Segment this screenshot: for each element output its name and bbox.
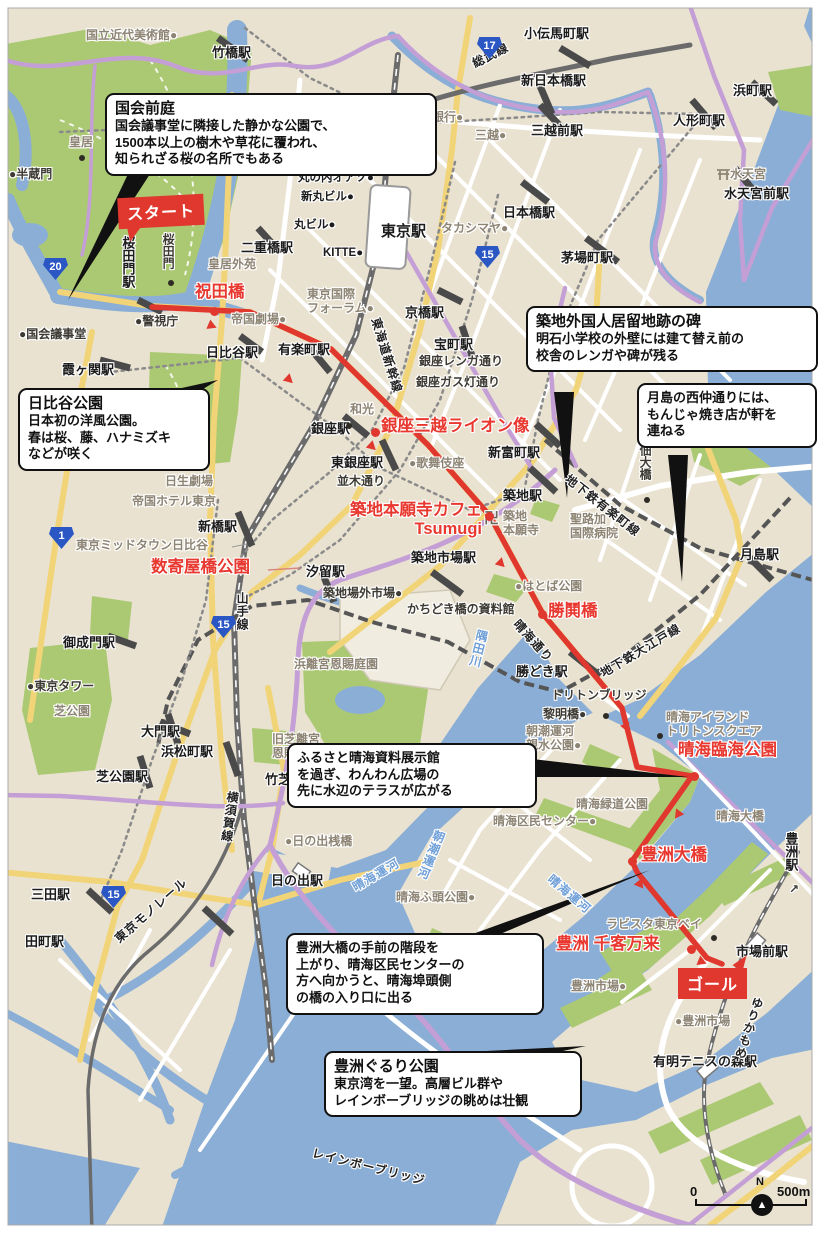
map-label: 東京駅 xyxy=(381,223,426,241)
map-label: 浜町駅 xyxy=(733,83,772,98)
map-label: 桜田門 xyxy=(161,233,175,269)
route-point-dot xyxy=(538,610,547,619)
map-label: 銀座レンガ通り xyxy=(419,354,503,368)
map-label: 並木通り xyxy=(337,474,385,488)
map-label: 御成門駅 xyxy=(63,635,115,650)
poi-dot xyxy=(711,935,717,941)
compass-north-label: N xyxy=(756,1176,764,1188)
scale-tick-right xyxy=(805,1199,807,1206)
map-label: 日の出駅 xyxy=(271,873,323,888)
map-label: 佃大橋 xyxy=(638,444,652,480)
map-label: 豊洲市場● xyxy=(571,979,626,993)
goal-badge: ゴール xyxy=(678,968,747,999)
map-label: 勝鬨橋 xyxy=(548,602,598,621)
map-label: 二重橋駅 xyxy=(241,240,293,255)
map-label: 人形町駅 xyxy=(673,113,725,128)
map-label: ●はとば公園 xyxy=(515,579,582,593)
map-label: 皇居 xyxy=(69,135,93,149)
map-label: かちどき橋の資料館 xyxy=(407,602,515,616)
map-label: ●警視庁 xyxy=(135,314,178,328)
map-label: 宝町駅 xyxy=(434,337,473,352)
map-label: 築地本願寺カフェ Tsumugi xyxy=(330,501,482,540)
map-label: 浜離宮恩賜庭園 xyxy=(294,657,378,671)
map-label: 東京ミッドタウン日比谷 xyxy=(76,538,208,552)
map-label: 東京国際 フォーラム● xyxy=(307,287,374,315)
map-label: 芝公園 xyxy=(54,704,90,718)
map-label: 芝公園駅 xyxy=(96,769,148,784)
map-label: 築地駅 xyxy=(503,488,542,503)
map-label: 豊洲大橋 xyxy=(641,846,707,865)
map-label: 日本橋駅 xyxy=(503,205,555,220)
map-label: 三越● xyxy=(475,128,506,142)
poi-dot xyxy=(168,280,174,286)
map-label: 浜松町駅 xyxy=(161,744,213,759)
callout-body: 明石小学校の外壁には建て替え前の 校舎のレンガや碑が残る xyxy=(536,331,808,364)
map-label: 晴海ふ頭公園● xyxy=(396,890,475,904)
poi-dot xyxy=(644,497,650,503)
callout-gururi-park: 豊洲ぐるり公園 東京湾を一望。高層ビル群や レインボーブリッジの眺めは壮観 xyxy=(324,1051,582,1117)
map-label: 築地 本願寺 xyxy=(503,509,539,537)
map-label: 銀座三越ライオン像 xyxy=(381,417,530,436)
poi-dot xyxy=(657,733,663,739)
map-label: 有楽町駅 xyxy=(278,342,330,357)
map-label: 勝どき駅 xyxy=(516,664,568,679)
map-label: 皇居外苑 xyxy=(208,257,256,271)
map-label: 月島駅 xyxy=(740,547,779,562)
map-label: 晴海緑道公園 xyxy=(576,797,648,811)
map-label: 晴海アイランド トリトンスクエア xyxy=(666,710,762,738)
map-label: 国立近代美術館● xyxy=(86,28,177,42)
map-label: 築地市場駅 xyxy=(411,550,476,565)
map-label: 三越前駅 xyxy=(531,123,583,138)
map-label: ●歌舞伎座 xyxy=(409,456,464,470)
map-canvas xyxy=(0,0,820,1233)
map-label: 新富町駅 xyxy=(488,445,540,460)
map-label: トリトンブリッジ xyxy=(551,688,647,702)
callout-title: 国会前庭 xyxy=(115,100,427,118)
map-label: 数寄屋橋公園 xyxy=(151,558,250,577)
callout-tsukiji-monument: 築地外国人居留地跡の碑 明石小学校の外壁には建て替え前の 校舎のレンガや碑が残る xyxy=(526,306,818,372)
map-label: KITTE● xyxy=(323,247,363,261)
callout-kokkai-garden: 国会前庭 国会議事堂に隣接した静かな公園で、 1500本以上の樹木や草花に覆われ… xyxy=(105,93,437,176)
map-label: 和光 xyxy=(350,402,374,416)
callout-hibiya-park: 日比谷公園 日本初の洋風公園。 春は桜、藤、ハナミズキ などが咲く xyxy=(18,388,210,471)
map-label: 小伝馬町駅 xyxy=(524,26,589,41)
map-label: 銀座ガス灯通り xyxy=(416,375,500,389)
map-label: ●日の出桟橋 xyxy=(285,834,352,848)
poi-dot xyxy=(603,713,609,719)
scale-zero: 0 xyxy=(690,1184,697,1199)
map-label: 水天宮 xyxy=(730,167,766,181)
map-label: 晴海区民センター● xyxy=(493,814,596,828)
map-label: 黎明橋● xyxy=(543,707,586,721)
map-label: 桜田門駅 xyxy=(120,236,135,288)
poi-dot xyxy=(79,155,85,161)
scale-tick-left xyxy=(695,1199,697,1206)
map-label: 三田駅 xyxy=(31,887,70,902)
map-label: 新日本橋駅 xyxy=(521,73,586,88)
map-label: 日生劇場 xyxy=(165,474,213,488)
map-label: 帝国ホテル東京 xyxy=(132,494,216,508)
map-label: 山手線 xyxy=(235,592,249,631)
map-label: 日比谷駅 xyxy=(206,345,258,360)
map-label: 晴海大橋 xyxy=(716,809,764,823)
compass-icon: ▲ xyxy=(751,1194,773,1216)
map-label: 帝国劇場● xyxy=(231,312,286,326)
route-point-dot xyxy=(690,772,699,781)
map-label: ●半蔵門 xyxy=(9,167,52,181)
route-point-dot xyxy=(210,307,219,316)
map-label: 豊洲 千客万来 xyxy=(556,935,660,954)
map-label: 霞ヶ関駅 xyxy=(62,362,114,377)
map-label: ●豊洲市場 xyxy=(675,1014,730,1028)
callout-tsukishima: 月島の西仲通りには、 もんじゃ焼き店が軒を 連ねる xyxy=(637,383,817,448)
map-label: 竹橋駅 xyxy=(212,45,251,60)
route-point-dot xyxy=(628,857,637,866)
callout-body: 国会議事堂に隣接した静かな公園で、 1500本以上の樹木や草花に覆われ、 知られ… xyxy=(115,118,427,168)
callout-harumi: ふるさと晴海資料展示館 を過ぎ、わんわん広場の 先に水辺のテラスが広がる xyxy=(287,743,537,808)
map-label: 田町駅 xyxy=(25,934,64,949)
map-label: ラビスタ東京ベイ xyxy=(606,917,702,931)
callout-body: 日本初の洋風公園。 春は桜、藤、ハナミズキ などが咲く xyxy=(28,413,200,463)
map-label: 銀座駅 xyxy=(311,421,350,436)
map-label: 晴海臨海公園 xyxy=(678,741,777,760)
map-label: 京橋駅 xyxy=(405,305,444,320)
map-label: 祝田橋 xyxy=(195,283,245,302)
scale-distance: 500m xyxy=(777,1184,810,1199)
callout-body: 豊洲大橋の手前の階段を 上がり、晴海区民センターの 方へ向かうと、晴海埠頭側 の… xyxy=(296,940,534,1007)
map-label: 新丸ビル● xyxy=(301,191,354,205)
map-label: 汐留駅 xyxy=(306,564,345,579)
map-label: 水天宮前駅 xyxy=(724,186,789,201)
callout-title: 築地外国人居留地跡の碑 xyxy=(536,313,808,331)
callout-body: 月島の西仲通りには、 もんじゃ焼き店が軒を 連ねる xyxy=(647,390,807,440)
map-label: 東銀座駅 xyxy=(331,455,383,470)
map-label: タカシマヤ● xyxy=(441,221,508,235)
map-label: 豊洲駅 xyxy=(783,832,798,871)
map-label: 丸ビル● xyxy=(294,219,335,233)
route-point-dot xyxy=(687,945,696,954)
map-label: 大門駅 xyxy=(141,724,180,739)
callout-title: 日比谷公園 xyxy=(28,395,200,413)
map-label: 築地場外市場● xyxy=(323,586,402,600)
callout-toyosu-ohashi: 豊洲大橋の手前の階段を 上がり、晴海区民センターの 方へ向かうと、晴海埠頭側 の… xyxy=(286,933,544,1015)
walking-route-map: 竹橋駅小伝馬町駅新日本橋駅浜町駅三越前駅人形町駅水天宮前駅日本橋駅茅場町駅東京駅… xyxy=(0,0,820,1233)
callout-body: ふるさと晴海資料展示館 を過ぎ、わんわん広場の 先に水辺のテラスが広がる xyxy=(297,750,527,800)
map-label: ●東京タワー xyxy=(27,679,94,693)
callout-title: 豊洲ぐるり公園 xyxy=(334,1058,572,1076)
map-label: 茅場町駅 xyxy=(561,250,613,265)
poi-dot xyxy=(346,423,352,429)
route-point-dot xyxy=(485,512,494,521)
map-label: 新橋駅 xyxy=(198,519,237,534)
callout-body: 東京湾を一望。高層ビル群や レインボーブリッジの眺めは壮観 xyxy=(334,1076,572,1109)
map-label: ●国会議事堂 xyxy=(19,327,86,341)
route-point-dot xyxy=(371,428,380,437)
map-label: ↗ xyxy=(789,882,799,896)
